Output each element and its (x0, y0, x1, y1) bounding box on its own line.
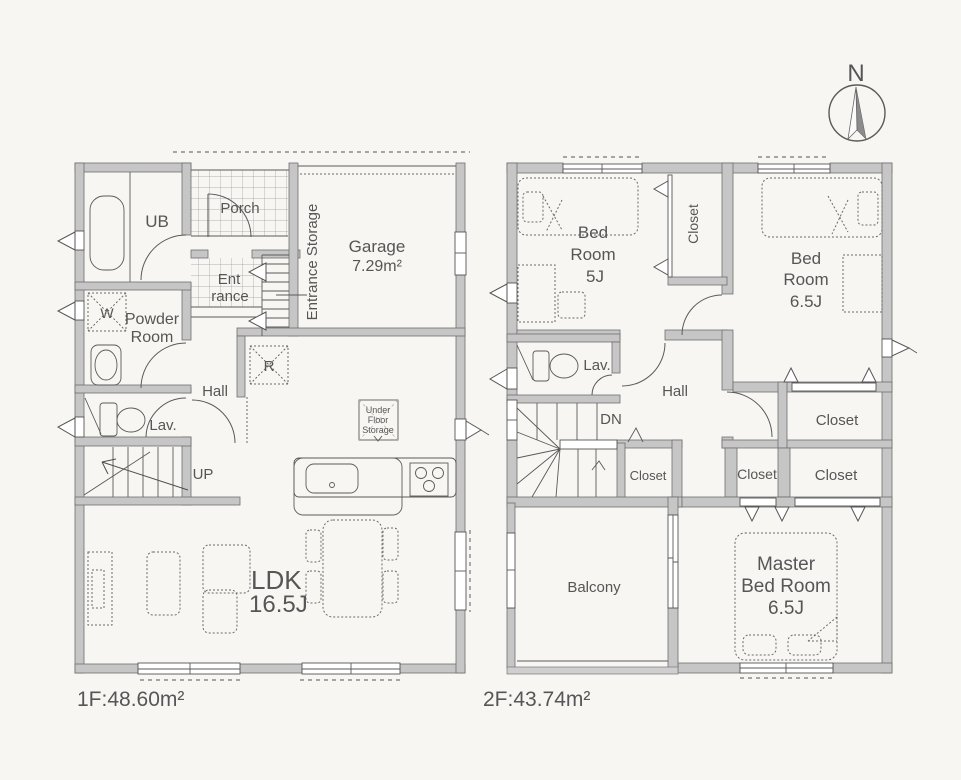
label-1f-area: 1F:48.60m² (77, 688, 184, 711)
scanned-floorplan-page: N (0, 0, 961, 780)
label-ufs-2: Floor (368, 415, 389, 425)
label-closet-c: Closet (816, 412, 859, 429)
hall-door-arc (192, 400, 235, 443)
ldk-furniture (88, 520, 398, 633)
label-dn: DN (600, 411, 622, 428)
label-garage: Garage (349, 237, 406, 256)
label-entrance-storage: Entrance Storage (304, 204, 321, 321)
label-ufs-1: Under (366, 405, 391, 415)
lav2f-door-arc (592, 375, 612, 395)
kitchen-counter (294, 458, 456, 515)
label-hall-1f: Hall (202, 383, 228, 400)
label-master-1: Master (757, 554, 816, 575)
bed65-door-arc (682, 295, 722, 335)
label-powder-2: Room (131, 329, 174, 346)
label-powder-1: Powder (125, 311, 180, 328)
bed5-door-arc (622, 343, 665, 386)
label-closet-b: Closet (630, 468, 667, 483)
label-bed5-2: Room (570, 245, 615, 264)
label-porch: Porch (220, 200, 259, 217)
compass-north-label: N (847, 60, 864, 87)
label-ufs-3: Storage (362, 425, 394, 435)
label-entrance-1: Ent (218, 271, 241, 288)
label-ub: UB (145, 212, 169, 231)
compass-rose: N (829, 60, 885, 141)
label-lav-1f: Lav. (149, 417, 176, 434)
label-balcony: Balcony (567, 579, 621, 596)
room-lav-2f (517, 345, 578, 381)
label-closet-e: Closet (815, 467, 858, 484)
room-ub (90, 172, 186, 282)
label-bed65-3: 6.5J (790, 292, 822, 311)
label-master-3: 6.5J (768, 598, 804, 619)
label-closet-a: Closet (685, 204, 701, 244)
label-fridge: R (264, 358, 275, 375)
closet-a-structure (654, 175, 672, 277)
label-garage-area: 7.29m² (352, 258, 402, 275)
label-lav-2f: Lav. (583, 357, 610, 374)
compass-needle-dark (856, 87, 866, 139)
stairs-up (84, 447, 188, 497)
label-ldk-size: 16.5J (249, 591, 308, 618)
label-entrance-2: rance (211, 288, 249, 305)
floor-1-plan: UB Porch Ent rance Entrance Storage Gara… (58, 152, 489, 711)
label-hall-2f: Hall (662, 383, 688, 400)
label-closet-d: Closet (737, 466, 777, 482)
label-washer: W (100, 305, 114, 321)
label-bed5-3: 5J (586, 267, 604, 286)
label-2f-area: 2F:43.74m² (483, 688, 590, 711)
master-door-arc (727, 392, 772, 437)
label-bed65-2: Room (783, 270, 828, 289)
label-up: UP (193, 466, 214, 483)
compass-needle-light (848, 87, 857, 139)
label-master-2: Bed Room (741, 576, 831, 597)
floor-plan-drawing: N (0, 0, 961, 780)
floor-2-plan: Bed Room 5J Closet Bed Room 6.5J Lav. Ha… (483, 157, 917, 711)
label-bed65-1: Bed (791, 249, 821, 268)
label-bed5-1: Bed (578, 223, 608, 242)
